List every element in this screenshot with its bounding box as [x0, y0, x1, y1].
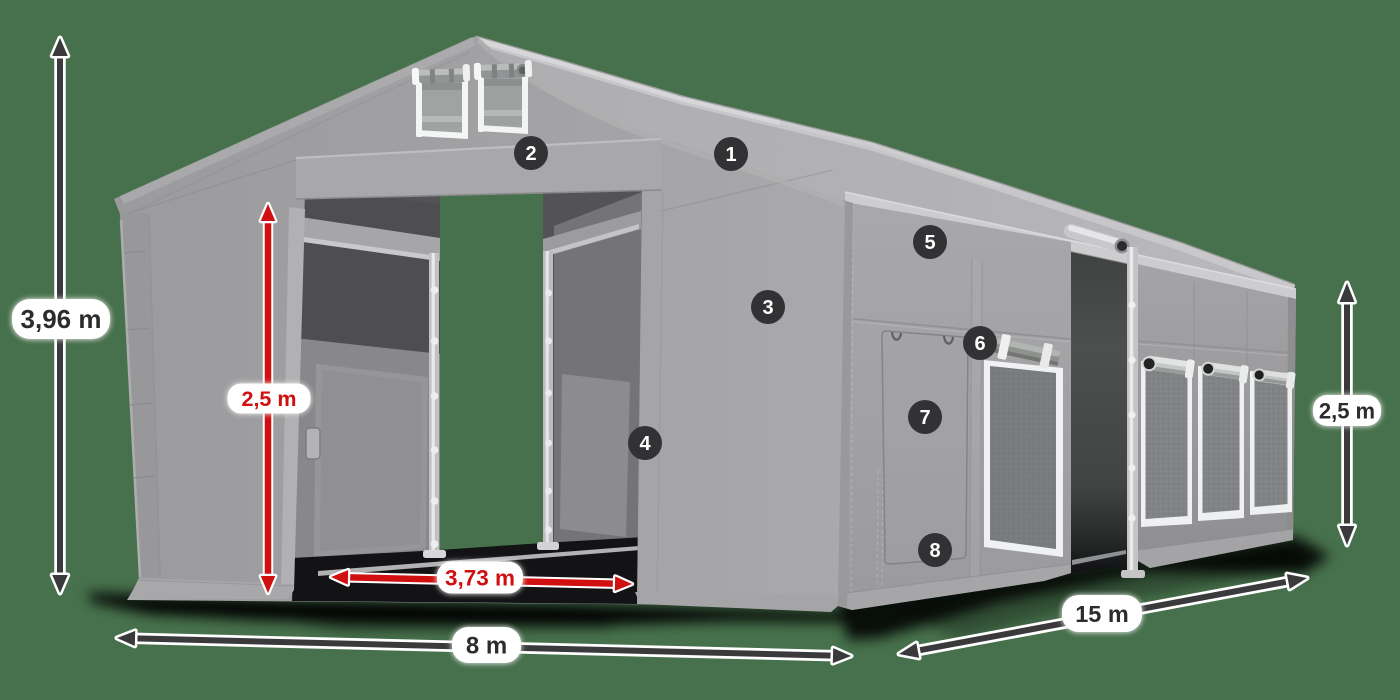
svg-text:1: 1 [725, 144, 736, 166]
svg-text:3: 3 [762, 297, 773, 319]
svg-text:6: 6 [974, 333, 985, 355]
svg-text:8: 8 [929, 540, 940, 562]
svg-text:4: 4 [639, 433, 651, 455]
svg-text:15 m: 15 m [1075, 601, 1129, 627]
svg-text:8 m: 8 m [466, 633, 507, 660]
svg-text:7: 7 [919, 407, 930, 429]
svg-text:2: 2 [525, 143, 536, 165]
svg-text:3,73 m: 3,73 m [445, 566, 515, 591]
svg-text:2,5 m: 2,5 m [1319, 398, 1375, 423]
svg-text:2,5 m: 2,5 m [242, 387, 297, 411]
svg-text:5: 5 [924, 232, 935, 254]
svg-text:3,96 m: 3,96 m [21, 304, 102, 334]
